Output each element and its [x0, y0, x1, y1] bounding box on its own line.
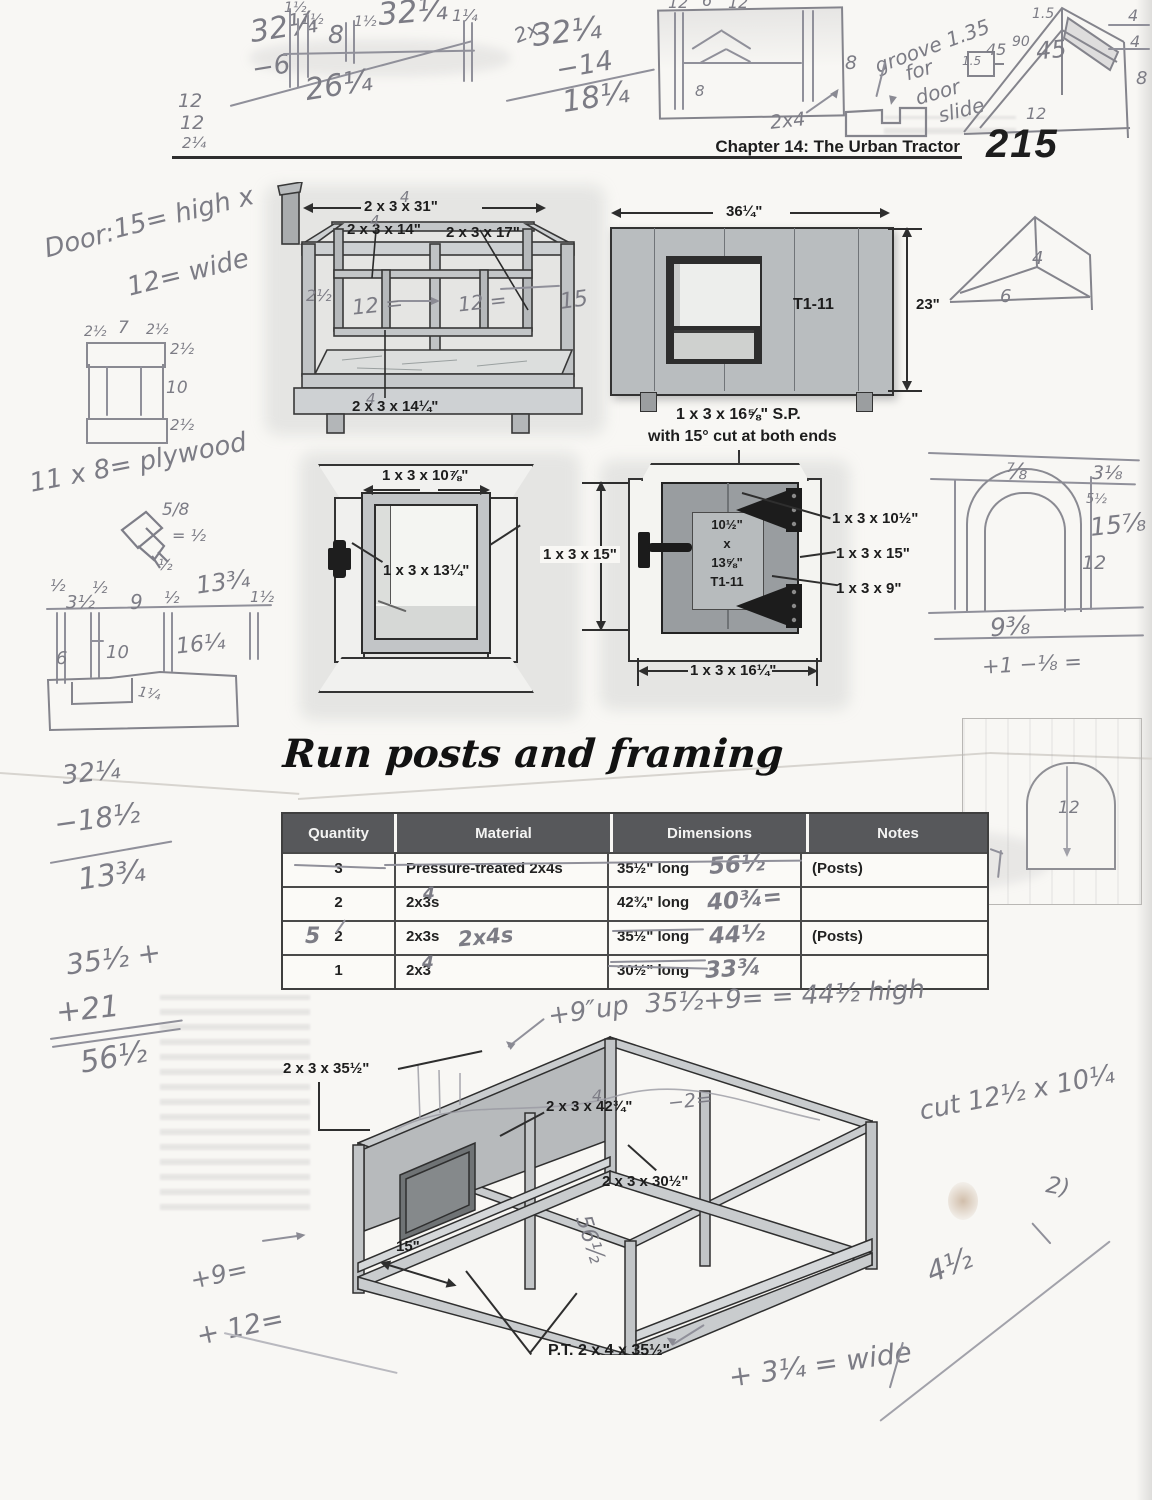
stain [948, 1182, 978, 1220]
table-row: 2 2x3s4 42¾" long40¾= [283, 886, 987, 920]
part-label: 1 x 3 x 15" [540, 546, 620, 563]
channel-sketch [842, 96, 934, 140]
section-heading: Run posts and framing [281, 731, 784, 777]
table-row: 25 2x3s2x4s 35½" long44½ (Posts) [283, 920, 987, 954]
fold-crease [0, 772, 299, 795]
hinge [736, 584, 808, 628]
panel-leg [856, 392, 873, 412]
showthrough-text [160, 995, 310, 1210]
leader-line [318, 1082, 320, 1130]
pencil-mark: 4 [366, 390, 376, 408]
calc-note: 12 [180, 112, 204, 134]
part-label: 2 x 3 x 17" [446, 224, 520, 241]
part-label: 1 x 3 x 10½" [832, 510, 918, 527]
pencil-mark: 15 [558, 286, 589, 315]
part-label: 2 x 3 x 14" [347, 221, 421, 238]
table-row: 3 Pressure-treated 2x4s 35½" long56½ (Po… [283, 852, 987, 886]
part-label: 1 x 3 x 16¼" [690, 662, 776, 679]
margin-note: 2) [1044, 1172, 1072, 1202]
margin-note: 4½ [921, 1241, 977, 1290]
chapter-header: Chapter 14: The Urban Tractor [600, 137, 960, 157]
pencil-mark: 4 [592, 1086, 602, 1105]
pencil-line [879, 1240, 1110, 1421]
part-label: 1 x 3 x 15" [836, 545, 910, 562]
pencil-mark: 4 [400, 188, 410, 206]
part-label: P.T. 2 x 4 x 35½" [548, 1342, 670, 1360]
margin-note: +9= [188, 1254, 251, 1294]
scanned-plan-page: 32¼ −6 26¼ 12 12 2¼ 1½ 1½ 8 1½ 32¼ 1¼ 2x… [0, 0, 1152, 1500]
dimension-arrow [790, 212, 888, 214]
pencil-mark: 4 [370, 212, 380, 230]
dimension-arrow [772, 670, 816, 672]
pencil-mark: 12 = [457, 288, 508, 317]
dimension-arrow [482, 207, 544, 209]
material-label: T1-11 [793, 296, 834, 314]
column-header: Dimensions [613, 814, 806, 852]
handwritten-correction: 2x4s [457, 920, 515, 955]
dimension-arrow [438, 489, 488, 491]
table-header-row: Quantity Material Dimensions Notes [283, 814, 987, 852]
handwritten-correction: 44½ [708, 918, 766, 952]
calc-note: 12 [178, 90, 202, 112]
handwritten-correction: 4 [422, 948, 434, 978]
caption: 1 x 3 x 16⅝" S.P. [676, 406, 801, 424]
dimension-arrow [365, 489, 420, 491]
part-label: 1 x 3 x 10⅞" [382, 467, 468, 484]
dimension-arrow [640, 670, 688, 672]
dimension-arrow [305, 207, 361, 209]
handwritten-correction: 33¾ [704, 952, 762, 986]
column-header: Quantity [283, 814, 394, 852]
page-number: 215 [986, 122, 1059, 167]
latch [648, 543, 692, 552]
column-header: Material [397, 814, 610, 852]
part-label: 15" [396, 1238, 420, 1255]
part-label: 2 x 3 x 35½" [283, 1060, 369, 1077]
handwritten-correction: 5 [305, 922, 320, 952]
leader-line [318, 1129, 370, 1131]
pencil-mark: −2= [667, 1088, 713, 1114]
handwritten-correction: 56½ [708, 848, 766, 882]
margin-note: cut 12½ x 10¼ [917, 1059, 1117, 1126]
panel-leg [640, 392, 657, 412]
dimension-label: 36¼" [726, 203, 762, 220]
pencil-mark: 2½ [306, 286, 332, 305]
handwritten-correction: 40¾= [706, 882, 783, 918]
dimension-arrow [906, 229, 908, 389]
part-label: 2 x 3 x 14¼" [352, 398, 438, 415]
caption: with 15° cut at both ends [648, 428, 837, 446]
calc-note: 2¼ [182, 134, 206, 152]
materials-table: Quantity Material Dimensions Notes 3 Pre… [281, 812, 989, 990]
dimension-arrow [613, 212, 713, 214]
part-label: 1 x 3 x 13¼" [383, 562, 469, 579]
latch [328, 548, 351, 570]
pencil-line [398, 300, 438, 302]
dimension-label: 23" [916, 296, 940, 313]
part-label: 2 x 3 x 30½" [602, 1173, 688, 1190]
pencil-line [262, 1234, 304, 1242]
column-header: Notes [809, 814, 987, 852]
handwritten-correction: 4 [423, 879, 435, 909]
pencil-line [1031, 1222, 1051, 1244]
part-label: 1 x 3 x 9" [836, 580, 902, 597]
part-label: 2 x 3 x 42¾" [546, 1098, 632, 1115]
